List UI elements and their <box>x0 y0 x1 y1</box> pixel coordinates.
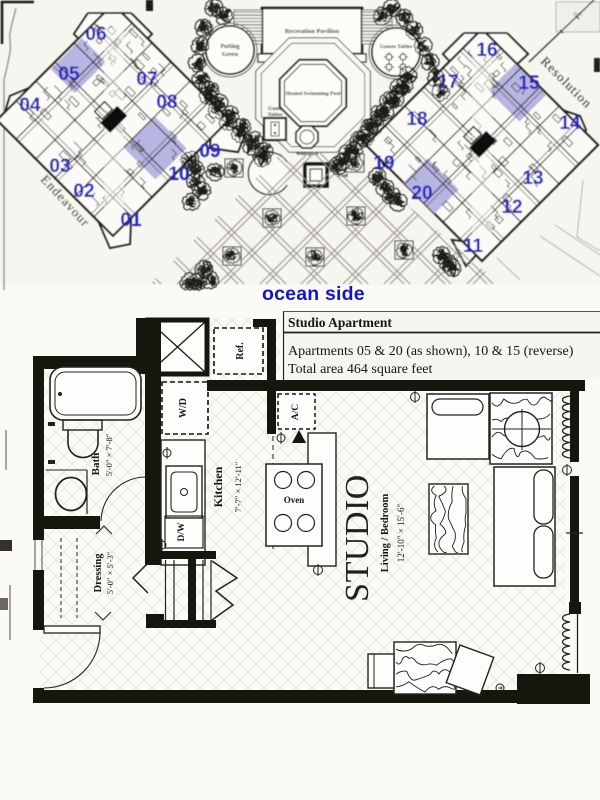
svg-text:15: 15 <box>518 73 540 94</box>
svg-text:09: 09 <box>199 141 220 162</box>
svg-text:14: 14 <box>559 113 581 134</box>
svg-text:12′-10″ × 15′-6″: 12′-10″ × 15′-6″ <box>396 504 406 563</box>
svg-text:11: 11 <box>463 236 484 257</box>
svg-text:12: 12 <box>501 197 522 218</box>
svg-text:Tables: Tables <box>267 112 282 118</box>
svg-text:07: 07 <box>136 69 157 90</box>
svg-text:01: 01 <box>120 210 142 231</box>
svg-text:Oven: Oven <box>284 495 305 505</box>
svg-text:5′-0″ × 5′-3″: 5′-0″ × 5′-3″ <box>105 551 115 594</box>
svg-text:Recreation Pavilion: Recreation Pavilion <box>285 28 340 35</box>
svg-text:16: 16 <box>476 40 497 61</box>
svg-text:Putting: Putting <box>220 44 239 50</box>
svg-text:08: 08 <box>156 92 177 113</box>
svg-text:18: 18 <box>406 109 427 130</box>
svg-text:20: 20 <box>411 183 432 204</box>
svg-text:Bath: Bath <box>90 453 102 476</box>
svg-text:Apartments 05 & 20 (as shown),: Apartments 05 & 20 (as shown), 10 & 15 (… <box>288 344 574 359</box>
svg-text:Total area 464 square feet: Total area 464 square feet <box>288 362 432 377</box>
svg-text:STUDIO: STUDIO <box>339 474 376 602</box>
svg-text:13: 13 <box>522 168 543 189</box>
svg-text:ocean side: ocean side <box>262 283 365 305</box>
svg-text:02: 02 <box>73 181 94 202</box>
svg-text:04: 04 <box>19 95 41 116</box>
svg-text:Green: Green <box>222 52 239 58</box>
svg-text:7′-7″ × 12′-11″: 7′-7″ × 12′-11″ <box>233 461 243 512</box>
svg-text:Studio Apartment: Studio Apartment <box>288 315 392 330</box>
svg-text:Dressing: Dressing <box>93 553 104 593</box>
svg-text:W/D: W/D <box>178 398 189 418</box>
svg-text:5′-0″ × 7′-8″: 5′-0″ × 7′-8″ <box>104 433 114 476</box>
svg-text:06: 06 <box>85 24 106 45</box>
svg-text:Heated Swimming Pool: Heated Swimming Pool <box>286 91 341 97</box>
svg-text:03: 03 <box>49 156 70 177</box>
svg-text:Kitchen: Kitchen <box>211 466 225 507</box>
svg-text:Games Tables: Games Tables <box>380 44 413 50</box>
svg-text:Ref.: Ref. <box>235 342 246 360</box>
svg-text:A/C: A/C <box>291 404 301 421</box>
svg-text:Living / Bedroom: Living / Bedroom <box>380 493 391 572</box>
svg-text:D/W: D/W <box>177 522 187 542</box>
svg-text:05: 05 <box>58 64 80 85</box>
